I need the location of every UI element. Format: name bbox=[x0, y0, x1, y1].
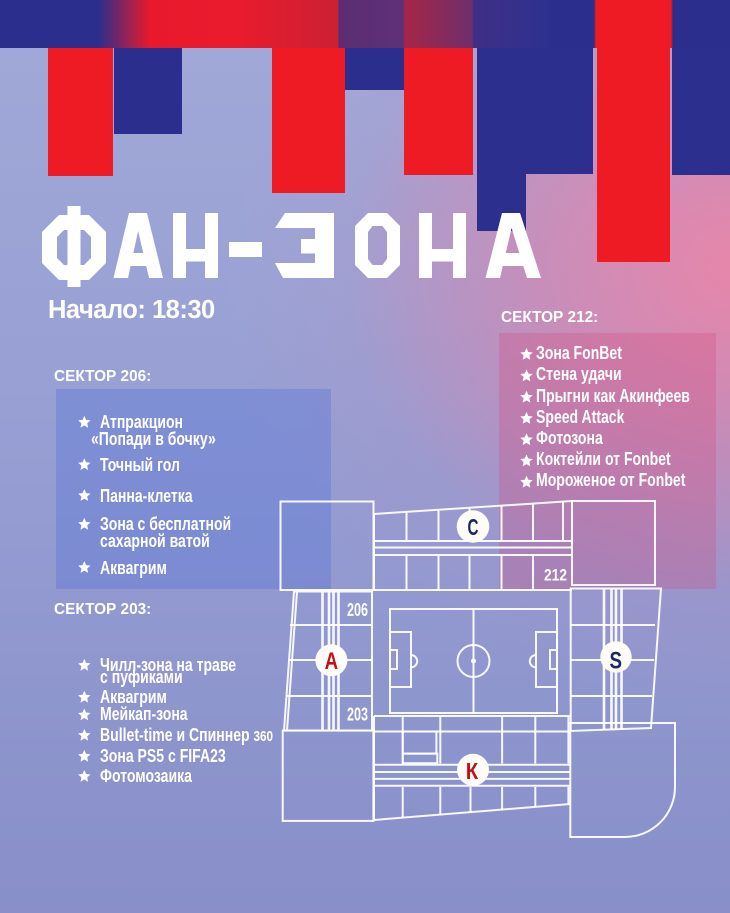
svg-text:S: S bbox=[610, 647, 623, 674]
svg-text:206: 206 bbox=[347, 600, 368, 620]
svg-text:C: C bbox=[468, 514, 479, 540]
svg-text:212: 212 bbox=[544, 566, 567, 585]
svg-text:А: А bbox=[325, 648, 339, 675]
svg-text:203: 203 bbox=[347, 705, 368, 725]
svg-text:К: К bbox=[466, 758, 479, 784]
